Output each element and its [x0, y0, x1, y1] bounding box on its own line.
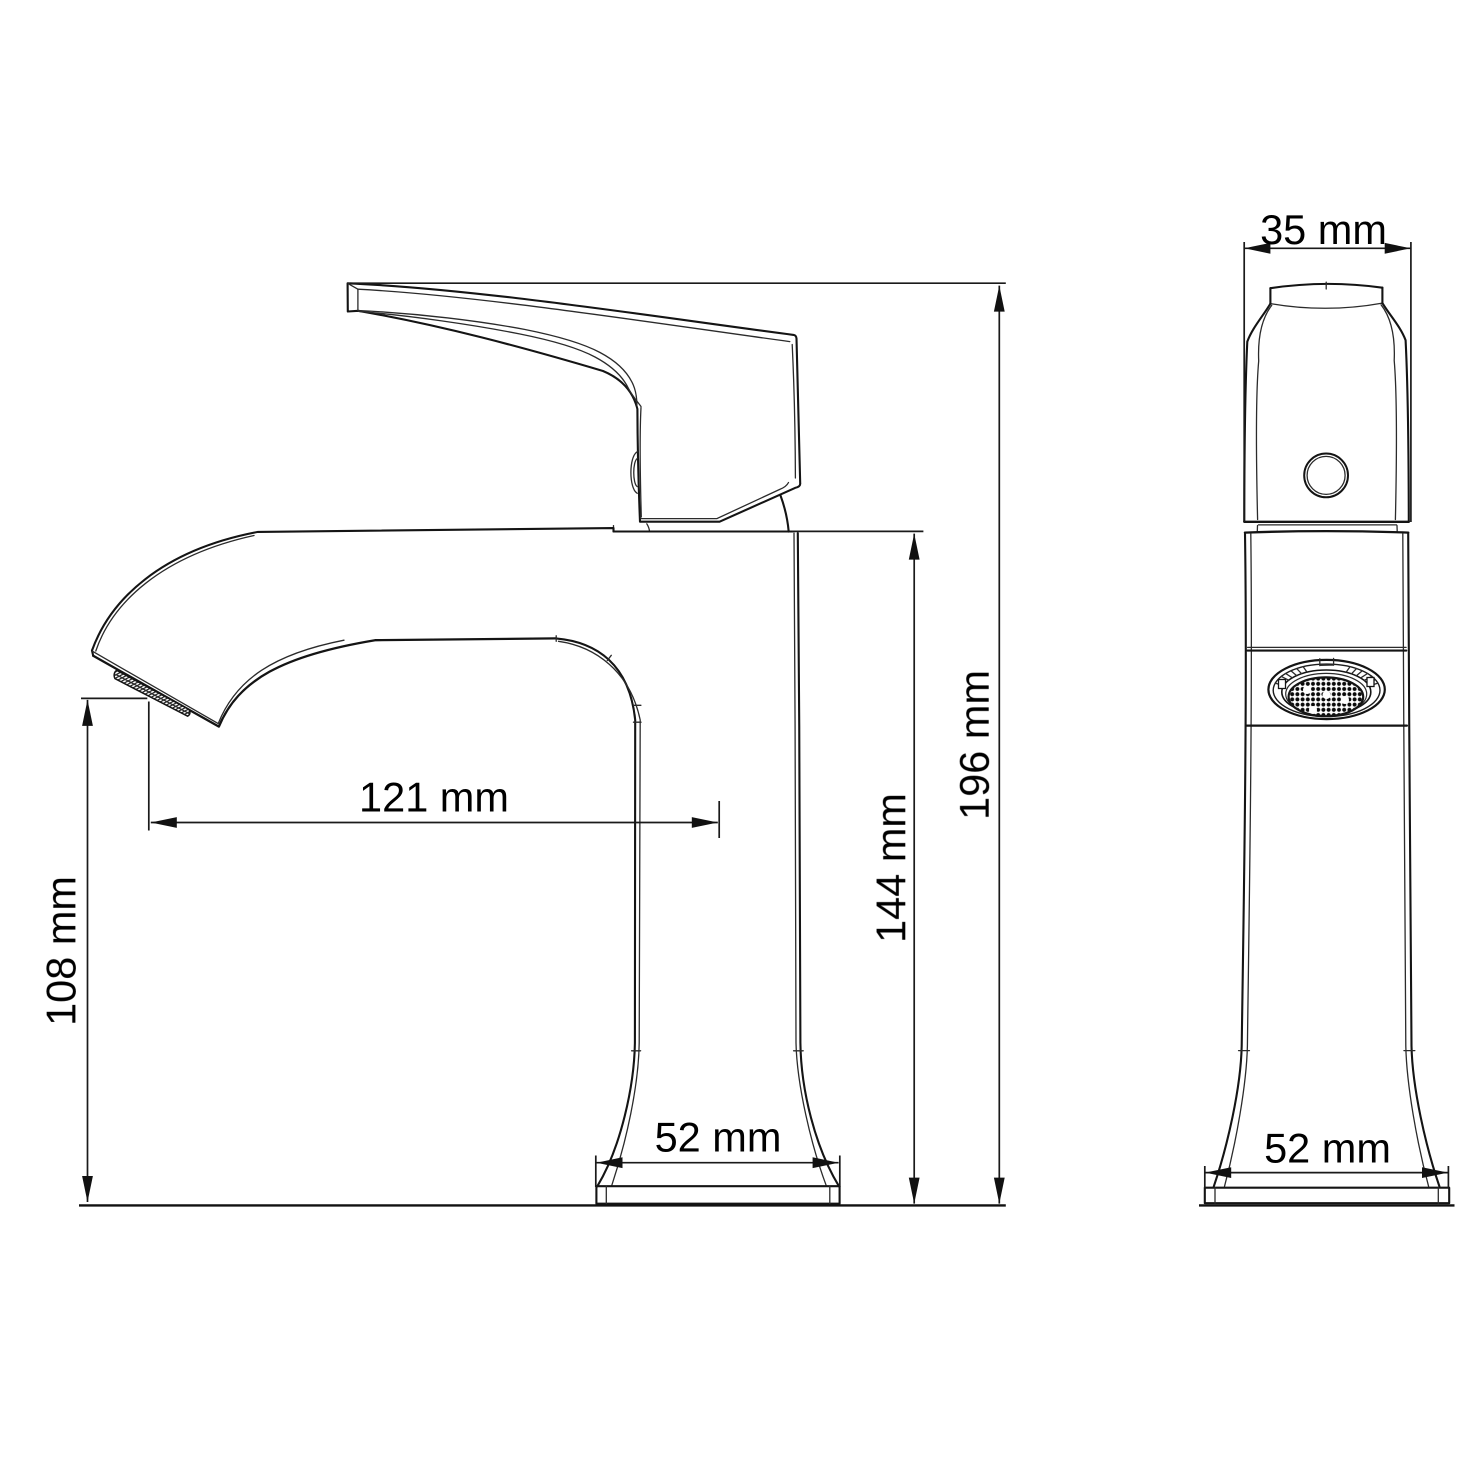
svg-text:108 mm: 108 mm	[37, 876, 84, 1026]
svg-text:144 mm: 144 mm	[867, 793, 914, 943]
svg-text:52 mm: 52 mm	[1264, 1124, 1391, 1171]
svg-text:52 mm: 52 mm	[655, 1113, 782, 1160]
svg-text:196 mm: 196 mm	[951, 670, 998, 820]
svg-text:121 mm: 121 mm	[359, 774, 509, 821]
svg-text:35 mm: 35 mm	[1260, 206, 1387, 253]
